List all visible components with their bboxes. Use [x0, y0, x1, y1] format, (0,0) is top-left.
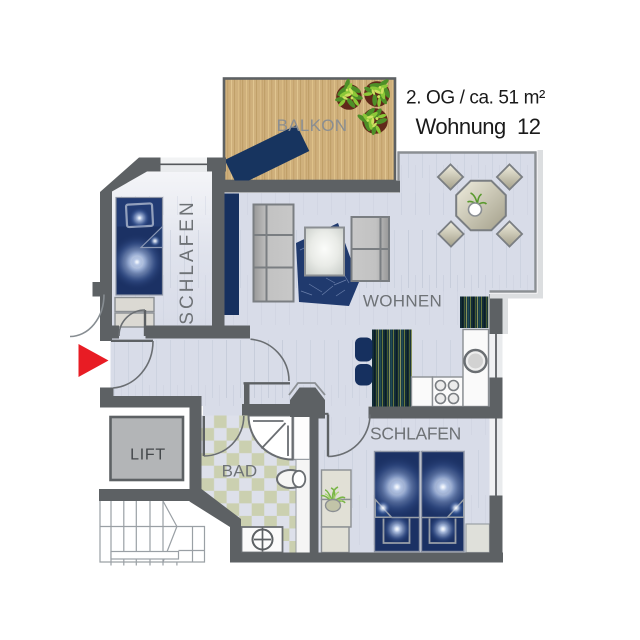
svg-text:BALKON: BALKON: [277, 116, 348, 135]
svg-text:Wohnung 12: Wohnung 12: [416, 114, 541, 139]
svg-text:BAD: BAD: [222, 462, 258, 481]
svg-text:2. OG / ca. 51 m²: 2. OG / ca. 51 m²: [406, 88, 545, 109]
svg-text:SCHLAFEN: SCHLAFEN: [370, 424, 461, 444]
svg-text:WOHNEN: WOHNEN: [363, 292, 442, 311]
svg-text:LIFT: LIFT: [130, 447, 166, 464]
svg-text:SCHLAFEN: SCHLAFEN: [177, 199, 198, 324]
